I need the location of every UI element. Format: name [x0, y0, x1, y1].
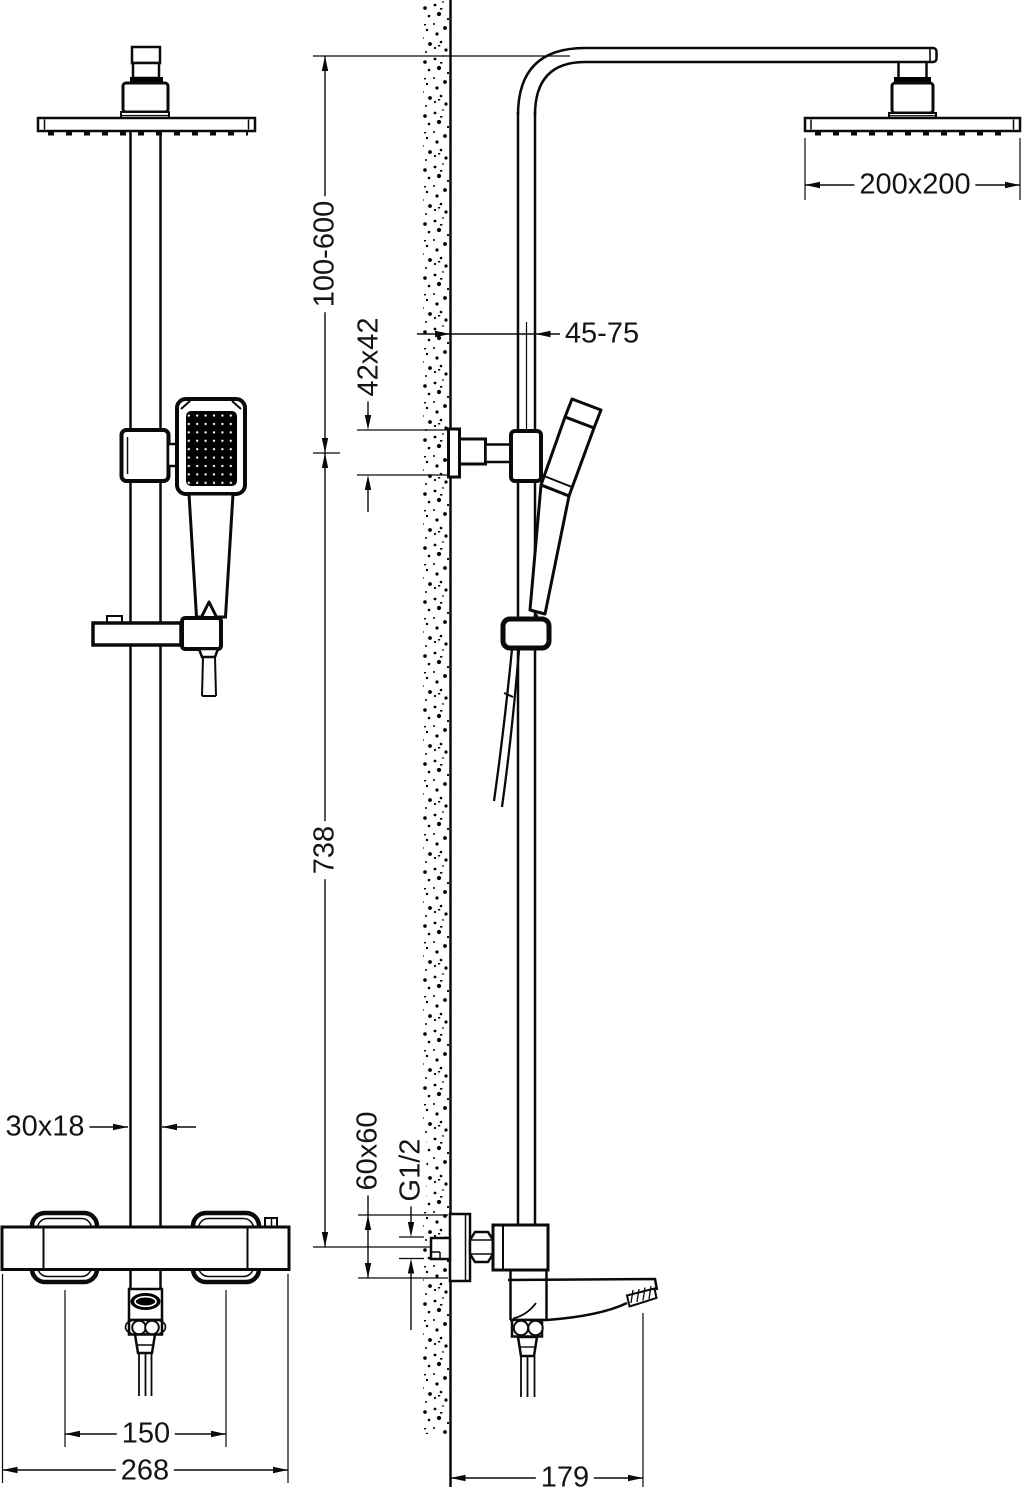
dim-label-pipe-section: 30x18	[0, 1112, 89, 1143]
dim-label-wall-distance: 45-75	[560, 319, 644, 350]
front-view-line-art	[2, 47, 289, 1396]
dim-label-height-range: 100-600	[310, 196, 341, 312]
dim-label-column-height: 738	[310, 821, 341, 879]
side-view-line-art	[431, 48, 1020, 1397]
drawing-line-art	[0, 0, 1022, 1491]
dim-label-thread-size: G1/2	[396, 1134, 427, 1207]
technical-drawing-canvas: 100-600 42x42 45-75 200x200 738 30x18 60…	[0, 0, 1022, 1491]
dim-label-inlet-spacing: 150	[117, 1419, 175, 1450]
dim-label-spout-depth: 179	[536, 1463, 594, 1491]
dim-label-head-size: 200x200	[854, 170, 975, 201]
wall-section	[423, 0, 451, 1487]
dim-label-bracket-size: 42x42	[354, 312, 385, 401]
dim-label-escutcheon-size: 60x60	[353, 1106, 384, 1195]
dim-label-mixer-width: 268	[116, 1456, 174, 1487]
